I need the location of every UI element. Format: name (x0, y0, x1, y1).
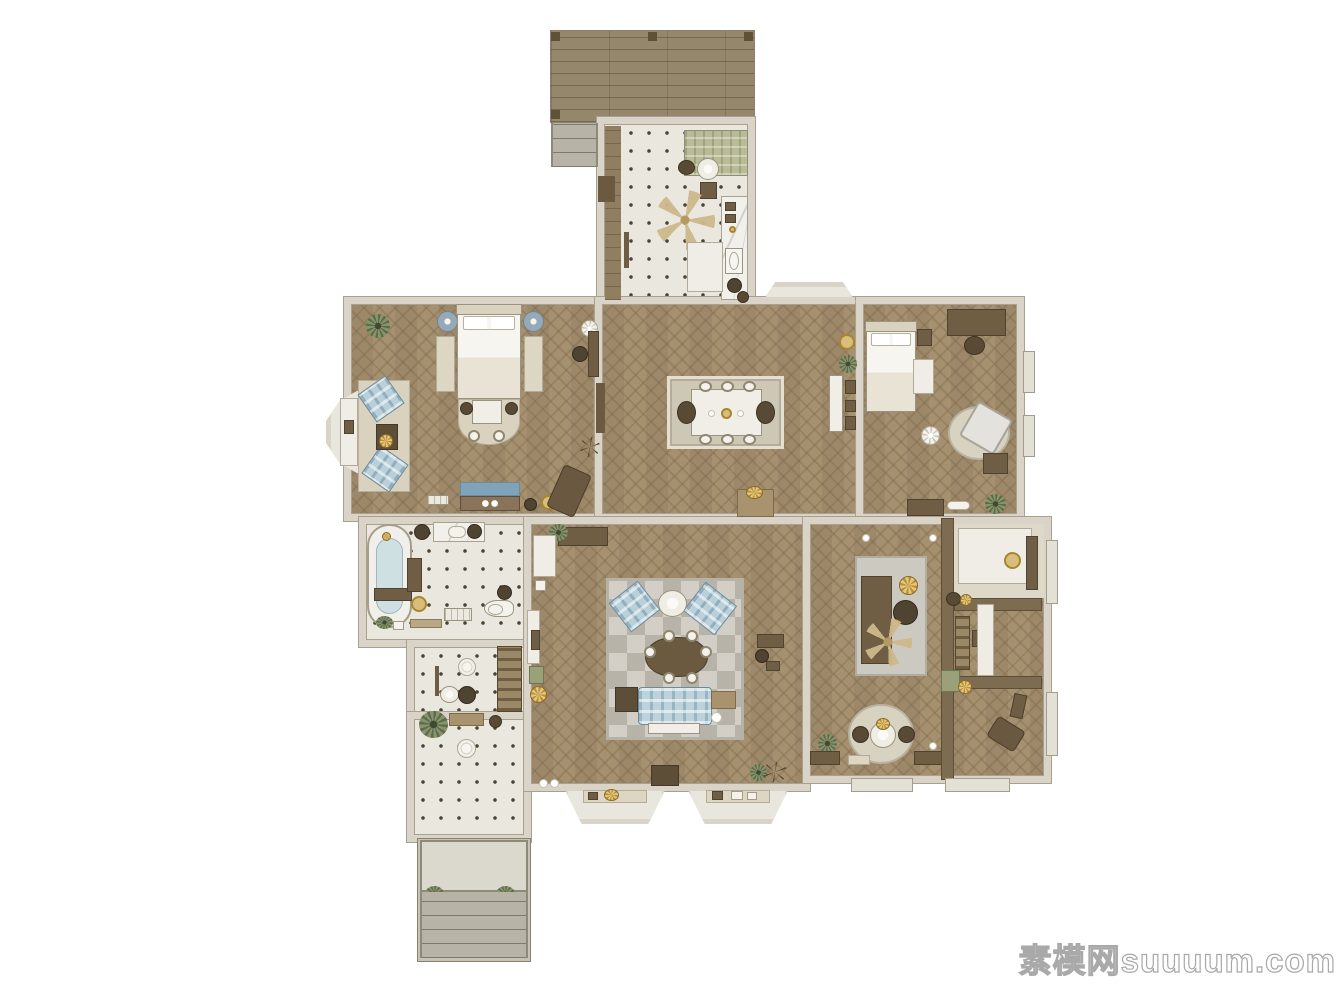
living-coffee-table (645, 637, 708, 677)
master-stool-dark (524, 498, 537, 511)
kitchen-gold-knob (729, 226, 736, 233)
bedroom2-floor-mat (947, 501, 970, 510)
living-wall-mat (533, 535, 556, 577)
living-gold-wheel (530, 686, 547, 703)
hall-wheel (960, 594, 972, 606)
study-partition-vertical (941, 518, 954, 780)
study-ceiling-fan (864, 618, 912, 666)
foyer-mirror (489, 715, 502, 728)
foyer-medallion (457, 739, 476, 758)
living-stool-2 (686, 630, 698, 642)
living-stool-1 (663, 630, 675, 642)
study-chair-left (852, 726, 869, 743)
living-round-table (658, 590, 687, 617)
floor-plan (0, 0, 1342, 1000)
bedroom2-desk (947, 309, 1006, 336)
study-door-mat (848, 755, 870, 765)
bathroom-bench-2 (410, 619, 442, 628)
master-desk (588, 331, 599, 377)
closet-mat (958, 528, 1032, 584)
deck-steps (551, 123, 598, 167)
study-stoop-1 (851, 778, 913, 792)
bedroom2-nightstand (917, 329, 932, 346)
kitchen-door (598, 176, 615, 202)
living-knob-2 (550, 779, 559, 788)
dining-host-chair-right (756, 401, 775, 424)
dining-chair-t2 (721, 381, 734, 392)
living-bay-right-item-1 (712, 791, 723, 800)
bedroom2-window-1 (1023, 351, 1035, 393)
living-desk (757, 634, 784, 648)
kitchen-appliance-2 (725, 214, 736, 223)
dining-chair-b2 (721, 434, 734, 445)
dining-decor-3 (845, 416, 856, 430)
bathroom-stool-gold (411, 596, 427, 612)
living-cabinet-right (711, 691, 736, 709)
master-plant (366, 314, 390, 338)
bedroom2-side-table (983, 453, 1008, 474)
bedroom2-side-mat (913, 359, 934, 394)
hall-chair (946, 592, 961, 606)
living-bay-right-item-3 (747, 792, 757, 800)
deck-post-2 (648, 32, 657, 41)
master-stool-left (460, 402, 473, 415)
master-bay-item (344, 420, 354, 434)
dining-gold-shell (746, 486, 763, 499)
pantry-chair (458, 686, 476, 704)
foyer-plant (419, 711, 448, 738)
dining-sideboard (829, 375, 843, 432)
master-chair-s2 (493, 430, 505, 442)
master-side-mat-left (436, 336, 455, 392)
pantry-shelf (497, 646, 522, 712)
master-chair-s1 (468, 430, 480, 442)
master-small-bench (427, 495, 449, 505)
living-sofa-console (648, 723, 700, 734)
bathroom-stool-1 (414, 524, 430, 540)
bedroom2-ceiling-fan (921, 426, 940, 445)
hall-wall (977, 604, 994, 676)
dining-plate-1 (708, 410, 715, 417)
deck-post-4 (551, 110, 560, 119)
living-stool-4 (686, 672, 698, 684)
master-desk-chair (572, 346, 588, 362)
watermark: 素模网suuuum.com (1019, 934, 1336, 982)
living-bottom-table (651, 765, 679, 786)
bathroom-sink (448, 526, 466, 538)
dining-bay-window (762, 282, 856, 302)
kitchen-island (687, 242, 723, 292)
study-chair-right (898, 726, 915, 743)
living-bay-left-item (588, 792, 598, 800)
living-sofa (638, 687, 712, 725)
dining-decor-2 (845, 400, 856, 412)
dining-host-chair-left (677, 401, 696, 424)
bathroom-box (393, 621, 404, 630)
master-coat-stand (580, 437, 600, 457)
master-nightstand-right (523, 311, 544, 332)
hall-bookshelf (955, 616, 970, 670)
dining-plant (839, 355, 857, 373)
bathroom-plant (376, 616, 393, 629)
bedroom2-plant (985, 494, 1006, 514)
kitchen-appliance-1 (725, 202, 736, 211)
bathroom-cabinet (407, 558, 422, 592)
living-stool-3 (663, 672, 675, 684)
roof-deck (550, 30, 755, 123)
master-dresser (460, 496, 520, 511)
master-stool-right (505, 402, 518, 415)
closet-cabinet (1026, 536, 1038, 590)
master-record-player (379, 434, 393, 448)
dining-door-panel (596, 383, 605, 433)
bedroom2-desk-chair (964, 336, 985, 355)
living-stool-5 (644, 646, 656, 658)
study-window-1 (1046, 540, 1058, 604)
dining-chair-b1 (699, 434, 712, 445)
dining-centerpiece (721, 408, 732, 419)
study-light-3 (929, 742, 937, 750)
living-knob-1 (539, 779, 548, 788)
kitchen-chair (678, 160, 695, 175)
dining-chair-t1 (699, 381, 712, 392)
study-light-1 (862, 534, 870, 542)
porch-steps (420, 892, 528, 958)
bathroom-toilet (484, 600, 514, 617)
floor-plan-canvas: 素模网suuuum.com (0, 0, 1342, 1000)
master-foot-bench (460, 482, 520, 496)
deck-post-3 (744, 32, 753, 41)
bedroom2-console (907, 499, 944, 516)
kitchen-round-table (697, 158, 719, 180)
study-light-2 (929, 534, 937, 542)
pantry-radiator (435, 666, 439, 696)
study-bench-1 (810, 751, 840, 765)
living-bench-items (531, 630, 540, 650)
study-table-wheel (876, 718, 890, 730)
hall-wheel-2 (958, 680, 972, 694)
closet-medallion (1004, 552, 1021, 569)
bathroom-faucet (382, 532, 391, 541)
bedroom2-window-2 (1023, 415, 1035, 457)
living-coat-stand (763, 762, 787, 782)
living-desk-side-table (766, 661, 780, 671)
kitchen-floor-drain (737, 291, 749, 303)
living-green-bench (529, 666, 544, 684)
master-nightstand-left (437, 311, 458, 332)
bathroom-stool-2 (467, 524, 482, 539)
living-cabinet-left (615, 687, 638, 712)
pantry-table (440, 686, 459, 703)
dining-corner-table (839, 334, 855, 350)
dining-plate-2 (737, 410, 744, 417)
foyer-console (449, 713, 484, 726)
living-bay-right-item-2 (731, 791, 743, 800)
dining-chair-b3 (743, 434, 756, 445)
kitchen-ceiling-fan (655, 190, 715, 250)
dining-chair-t3 (743, 381, 756, 392)
living-bay-left-shell (604, 789, 619, 801)
bathroom-bench (444, 608, 472, 621)
kitchen-sink (725, 248, 743, 274)
porch-landing (420, 840, 528, 892)
pantry-ceiling-light (458, 658, 476, 676)
hall-green-bench (941, 670, 960, 692)
living-floor-lamp (711, 712, 722, 723)
study-stoop-2 (945, 778, 1010, 792)
kitchen-wood-walkway (605, 126, 621, 300)
study-window-2 (1046, 692, 1058, 756)
master-bed (457, 307, 521, 399)
kitchen-radiator (624, 232, 629, 268)
deck-post-1 (551, 32, 560, 41)
study-gold-clock (899, 576, 918, 595)
dining-decor-1 (845, 380, 856, 394)
bedroom2-bed (866, 324, 916, 412)
master-side-mat-right (524, 336, 543, 392)
living-cube (535, 580, 546, 591)
living-stool-6 (700, 646, 712, 658)
master-tea-table (472, 400, 502, 424)
bathroom-stool-3 (497, 585, 512, 600)
